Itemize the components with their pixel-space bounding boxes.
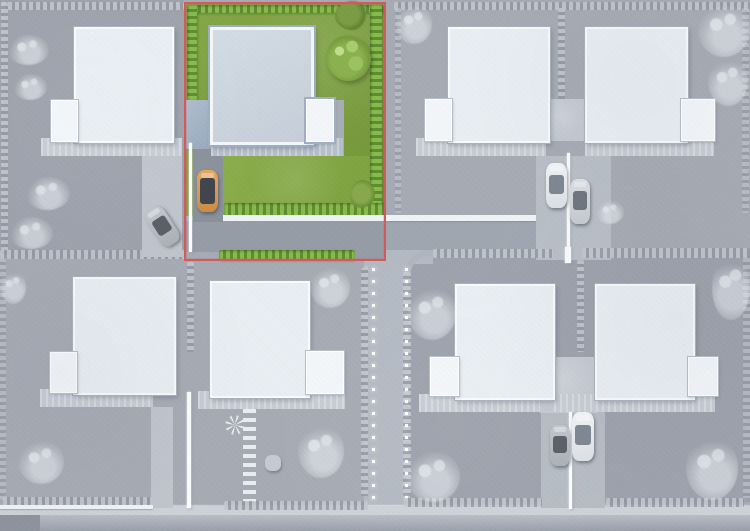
plot-region-top-right-a[interactable] bbox=[386, 0, 565, 258]
plot-region-bottom-left-b[interactable] bbox=[190, 262, 364, 502]
hedge bbox=[224, 501, 368, 510]
site-plan bbox=[0, 0, 750, 531]
street-lights-left bbox=[372, 268, 375, 502]
bottom-road-shadow bbox=[0, 515, 40, 531]
plot-region-bottom-left-a[interactable] bbox=[0, 262, 190, 502]
plot-region-top-right-b[interactable] bbox=[565, 0, 750, 258]
bottom-road bbox=[0, 515, 750, 531]
plot-region-selected[interactable] bbox=[184, 2, 386, 261]
plot-region-bottom-right-b[interactable] bbox=[578, 262, 750, 502]
curb bbox=[0, 505, 153, 509]
plot-region-top-left[interactable] bbox=[0, 0, 184, 258]
plot-region-bottom-right-a[interactable] bbox=[410, 262, 578, 502]
